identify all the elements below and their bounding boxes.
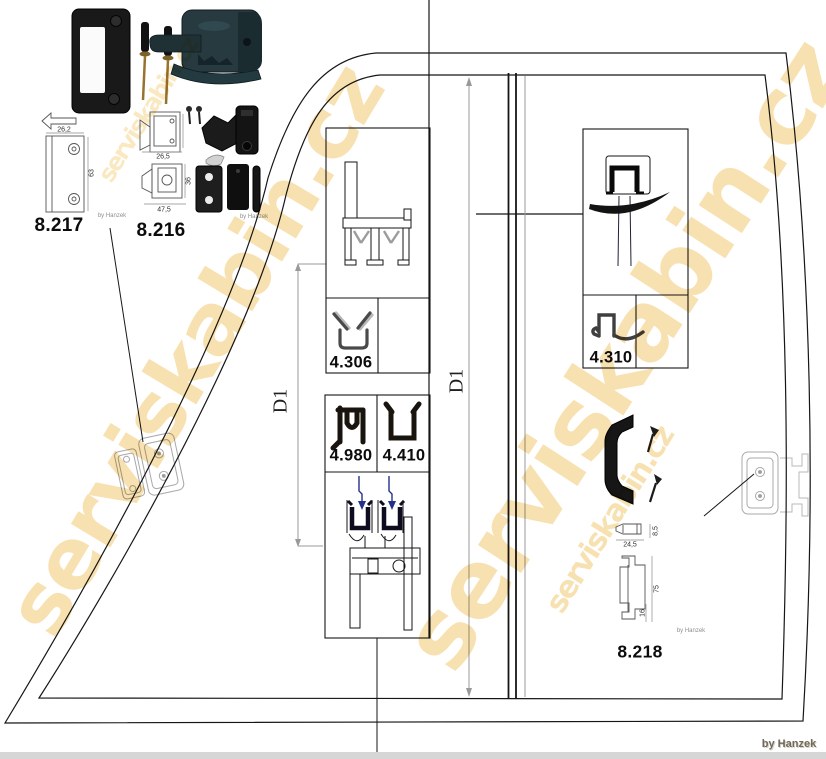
latch-drawing-right — [742, 452, 808, 516]
part-label-4980: 4.980 — [330, 447, 373, 466]
door-outer-outline — [5, 53, 810, 723]
dim-8216-width-top: 26,5 — [156, 154, 170, 161]
dim-8218-height: 75 — [654, 585, 661, 593]
seal-4306-glyph — [334, 313, 372, 348]
leader-lines — [110, 228, 754, 753]
d1-label-left: D1 — [270, 389, 293, 413]
glazing-assembly-drawing — [347, 476, 420, 630]
rivets — [140, 22, 174, 104]
author-credit: by Hanzek — [762, 738, 816, 750]
seal-4980-glyph — [333, 408, 363, 448]
dimension-lines — [295, 76, 525, 697]
rear-seal-section-drawing — [589, 156, 670, 266]
bottom-strip — [0, 752, 826, 759]
dim-8217-height: 63 — [89, 169, 96, 177]
dim-8216-height-bottom: 36 — [186, 177, 193, 185]
micro-credit-1: by Hanzek — [98, 213, 126, 219]
dim-8218-foot: 16 — [640, 609, 647, 617]
part-label-8218: 8.218 — [617, 642, 662, 663]
photo-8217 — [72, 9, 174, 113]
top-rail-profile-drawing — [343, 162, 411, 265]
seal-4410-glyph — [386, 404, 419, 438]
glass-pane-arrows — [359, 476, 392, 502]
part-label-4306: 4.306 — [330, 354, 373, 373]
part-label-8217: 8.217 — [34, 215, 83, 237]
part-label-4310: 4.310 — [590, 349, 633, 368]
part-label-4410: 4.410 — [383, 447, 426, 466]
d1-label-right: D1 — [446, 369, 469, 393]
door-inner-outline — [39, 75, 786, 699]
micro-credit-2: by Hanzek — [240, 214, 268, 220]
door-seal-diagram-art — [0, 0, 826, 759]
technical-diagram-page: 8.217 8.216 4.306 4.980 4.410 4.310 8.21… — [0, 0, 826, 759]
drawing-8218 — [616, 524, 652, 622]
dim-8218-width: 24,5 — [623, 542, 637, 549]
dim-8216-width-bottom: 47,5 — [157, 207, 171, 214]
seal-sections-dark — [348, 501, 404, 528]
dim-8217-width: 26,2 — [57, 127, 71, 134]
dim-8218-depth: 8,5 — [653, 526, 660, 536]
micro-credit-3: by Hanzek — [677, 628, 705, 634]
part-label-8216: 8.216 — [136, 220, 185, 242]
parts-8216 — [186, 106, 260, 212]
photo-8218 — [605, 415, 662, 504]
